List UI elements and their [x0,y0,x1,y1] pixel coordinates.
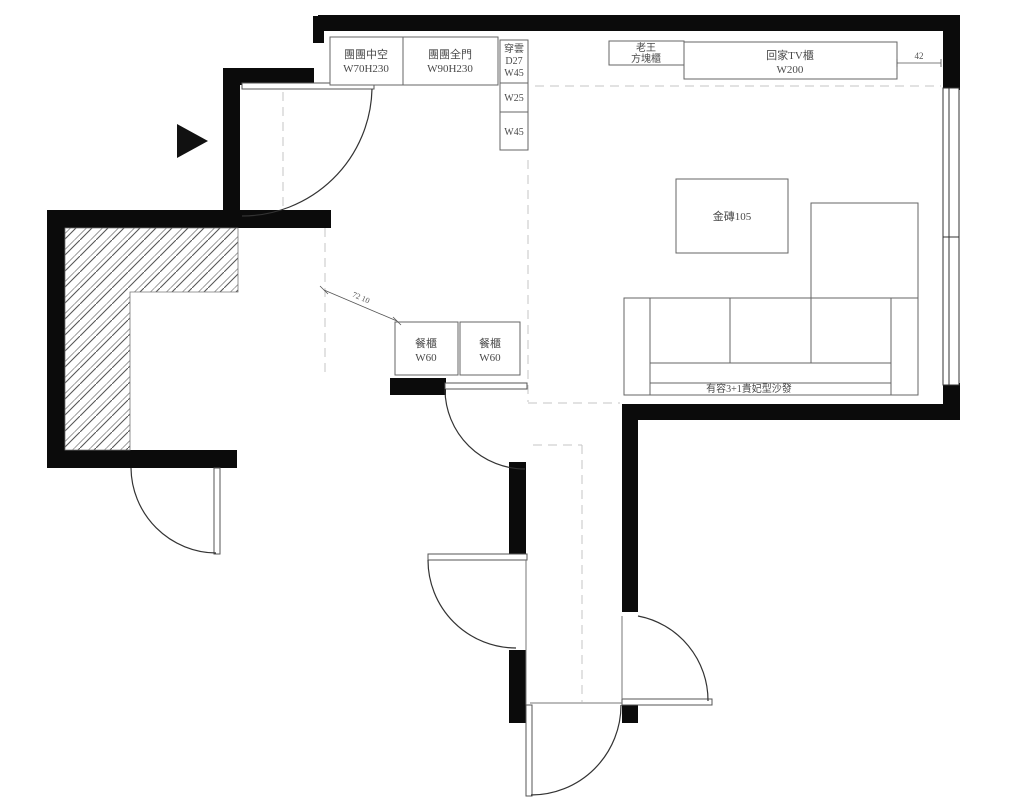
entry-door-arc [242,89,372,216]
label-laowang-name: 老王 [636,41,656,54]
wall-hatch-left [47,210,65,468]
dining-door-leaf [445,383,527,389]
dim-diag-tick-left [320,286,328,294]
dining-door-arc [445,390,525,469]
bottom-door-leaf [526,705,532,796]
label-tv-cabinet-size: W200 [777,64,804,76]
wall-right-upper [943,15,960,90]
wall-dining-bottom [390,378,446,395]
label-chuanyun-width: W45 [504,68,523,79]
label-cabinet-fulldoor-name: 團團全門 [428,47,472,61]
label-cabinet-hollow-name: 團團中空 [344,47,388,61]
left-room-door-leaf [214,468,220,554]
wall-entry-bottom [47,210,331,228]
label-dining-cabinet-1-size: W60 [415,352,437,364]
wall-top [318,15,960,31]
label-w45: W45 [504,127,523,138]
corridor-left-door-arc [428,560,516,648]
wall-corridor-left-lower [509,650,526,723]
bottom-door-arc [531,705,621,795]
entrance-arrow-icon [177,124,208,158]
label-dining-cabinet-1-name: 餐櫃 [415,336,437,350]
label-chuanyun-depth: D27 [505,56,522,67]
wall-corridor-right [622,404,638,612]
floor-plan-drawing: 團團中空 W70H230 團團全門 W90H230 穿雲 D27 W45 W25… [0,0,1021,812]
label-tv-cabinet-name: 回家TV櫃 [766,48,814,62]
floor-plan-canvas: 團團中空 W70H230 團團全門 W90H230 穿雲 D27 W45 W25… [0,0,1021,812]
left-room-door-arc [131,468,216,553]
sofa-chaise [811,203,918,298]
label-coffee-table: 金磚105 [713,209,752,223]
label-chuanyun-name: 穿雲 [504,42,524,55]
label-dining-cabinet-2-size: W60 [479,352,501,364]
sofa-body [624,298,918,395]
bottom-right-door-arc [638,616,708,701]
label-w25: W25 [504,93,523,104]
hatched-cabinet-area [65,228,238,450]
wall-corridor-left-upper [509,462,526,555]
wall-corridor-right-stub [622,703,638,723]
cabinet-hollow-box [330,37,403,85]
label-dining-cabinet-2-name: 餐櫃 [479,336,501,350]
bottom-right-door-leaf [622,699,712,705]
label-cabinet-fulldoor-size: W90H230 [427,63,473,75]
corridor-left-door-leaf [428,554,527,560]
label-dim-42: 42 [915,51,924,61]
window [943,88,959,385]
wall-topleft-connector [313,16,324,43]
cabinet-fulldoor-box [403,37,498,85]
wall-living-bottom [623,404,960,420]
wall-hatch-bottom [47,450,237,468]
label-sofa: 有容3+1貴妃型沙發 [706,382,792,395]
label-laowang-type: 方塊櫃 [631,52,661,65]
wall-entry-left [223,68,240,214]
label-cabinet-hollow-size: W70H230 [343,63,389,75]
